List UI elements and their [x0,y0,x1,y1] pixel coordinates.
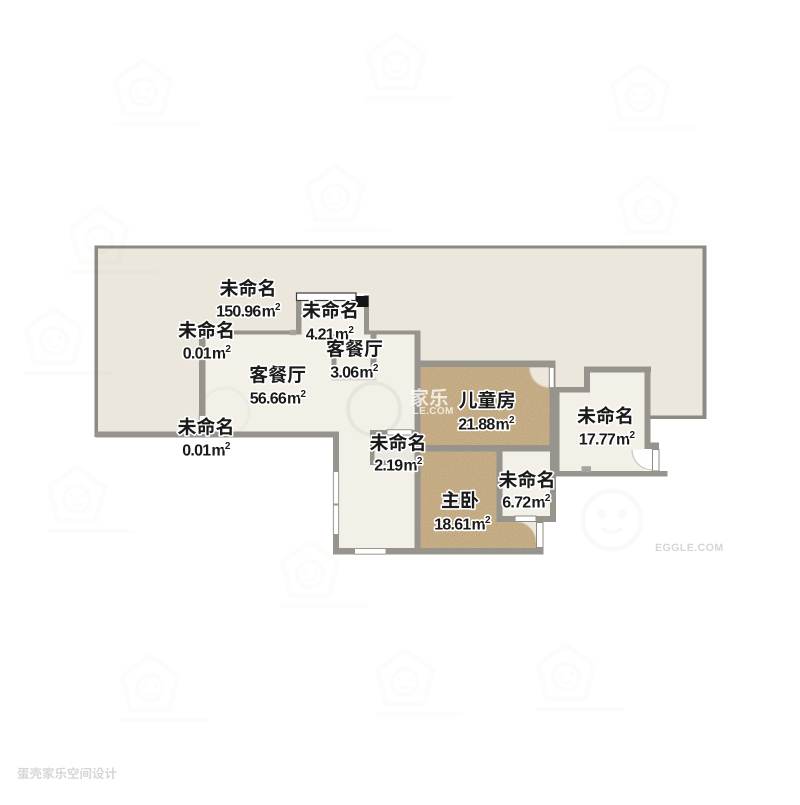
svg-text:LE.COM: LE.COM [413,406,454,417]
svg-text:17.77m2: 17.77m2 [579,430,636,449]
svg-text:21.88m2: 21.88m2 [458,415,515,434]
svg-text:56.66m2: 56.66m2 [250,389,307,408]
svg-text:6.72m2: 6.72m2 [502,493,551,512]
svg-text:150.96m2: 150.96m2 [216,302,281,321]
svg-text:18.61m2: 18.61m2 [434,515,491,534]
svg-text:EGGLE.COM: EGGLE.COM [655,542,724,554]
svg-text:3.06m2: 3.06m2 [330,363,379,382]
svg-text:2.19m2: 2.19m2 [374,456,423,475]
svg-text:0.01m2: 0.01m2 [182,441,231,460]
svg-text:0.01m2: 0.01m2 [183,344,232,363]
